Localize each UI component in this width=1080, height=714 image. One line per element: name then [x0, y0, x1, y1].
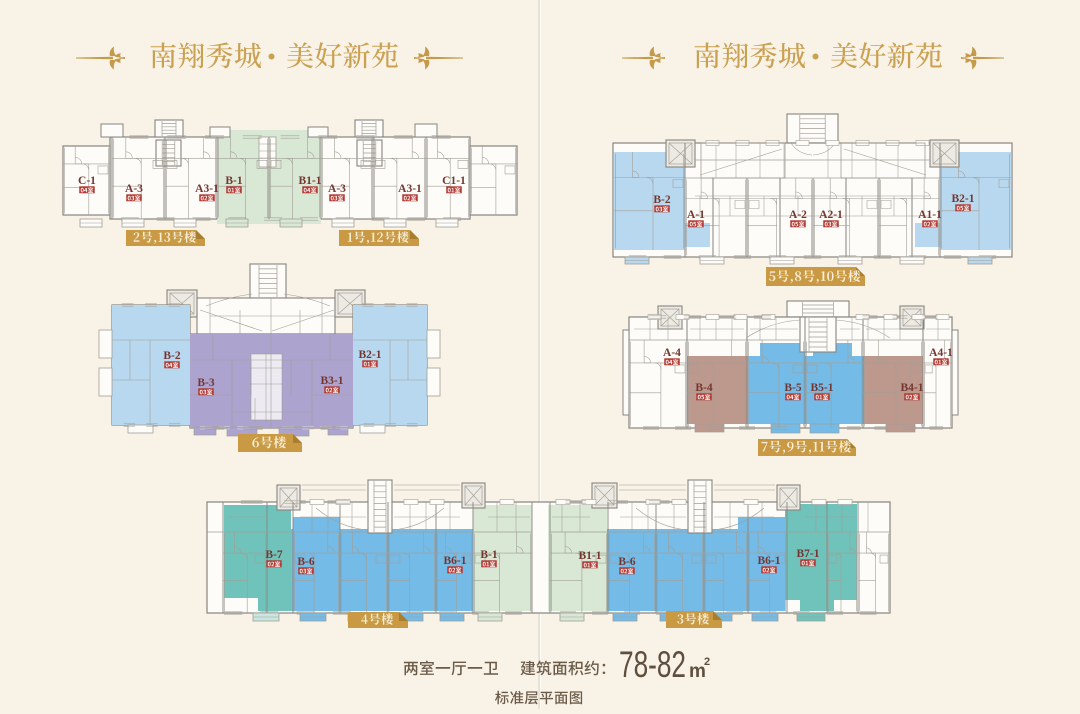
svg-text:B-3: B-3	[197, 377, 215, 389]
svg-text:A1-1: A1-1	[918, 209, 942, 221]
svg-text:A-1: A-1	[687, 209, 705, 221]
svg-text:B6-1: B6-1	[758, 555, 781, 567]
svg-text:B1-1: B1-1	[579, 550, 602, 562]
svg-text:B-4: B-4	[695, 382, 713, 394]
svg-text:A-3: A-3	[328, 183, 346, 195]
svg-text:B7-1: B7-1	[797, 548, 820, 560]
svg-text:C1-1: C1-1	[442, 175, 466, 187]
svg-text:A-4: A-4	[663, 347, 681, 359]
svg-text:A3-1: A3-1	[195, 183, 219, 195]
svg-text:B5-1: B5-1	[811, 382, 834, 394]
svg-text:B-2: B-2	[163, 350, 181, 362]
svg-text:B4-1: B4-1	[901, 382, 924, 394]
svg-text:B3-1: B3-1	[321, 375, 344, 387]
svg-text:A-3: A-3	[125, 183, 143, 195]
svg-text:A-2: A-2	[789, 209, 807, 221]
svg-text:B1-1: B1-1	[299, 175, 322, 187]
svg-text:B-7: B-7	[265, 549, 283, 561]
svg-text:B-6: B-6	[297, 556, 315, 568]
svg-text:B-1: B-1	[225, 175, 243, 187]
svg-text:A3-1: A3-1	[398, 183, 422, 195]
svg-text:A2-1: A2-1	[819, 209, 843, 221]
svg-text:B-6: B-6	[618, 556, 636, 568]
svg-text:2: 2	[704, 656, 710, 668]
svg-text:78-82: 78-82	[619, 644, 686, 685]
svg-text:A4-1: A4-1	[929, 347, 953, 359]
svg-text:B2-1: B2-1	[359, 349, 382, 361]
svg-text:B-2: B-2	[653, 194, 671, 206]
svg-text:B2-1: B2-1	[952, 193, 975, 205]
svg-text:B6-1: B6-1	[444, 555, 467, 567]
svg-text:C-1: C-1	[78, 175, 96, 187]
svg-text:B-5: B-5	[784, 382, 802, 394]
svg-text:B-1: B-1	[480, 549, 498, 561]
